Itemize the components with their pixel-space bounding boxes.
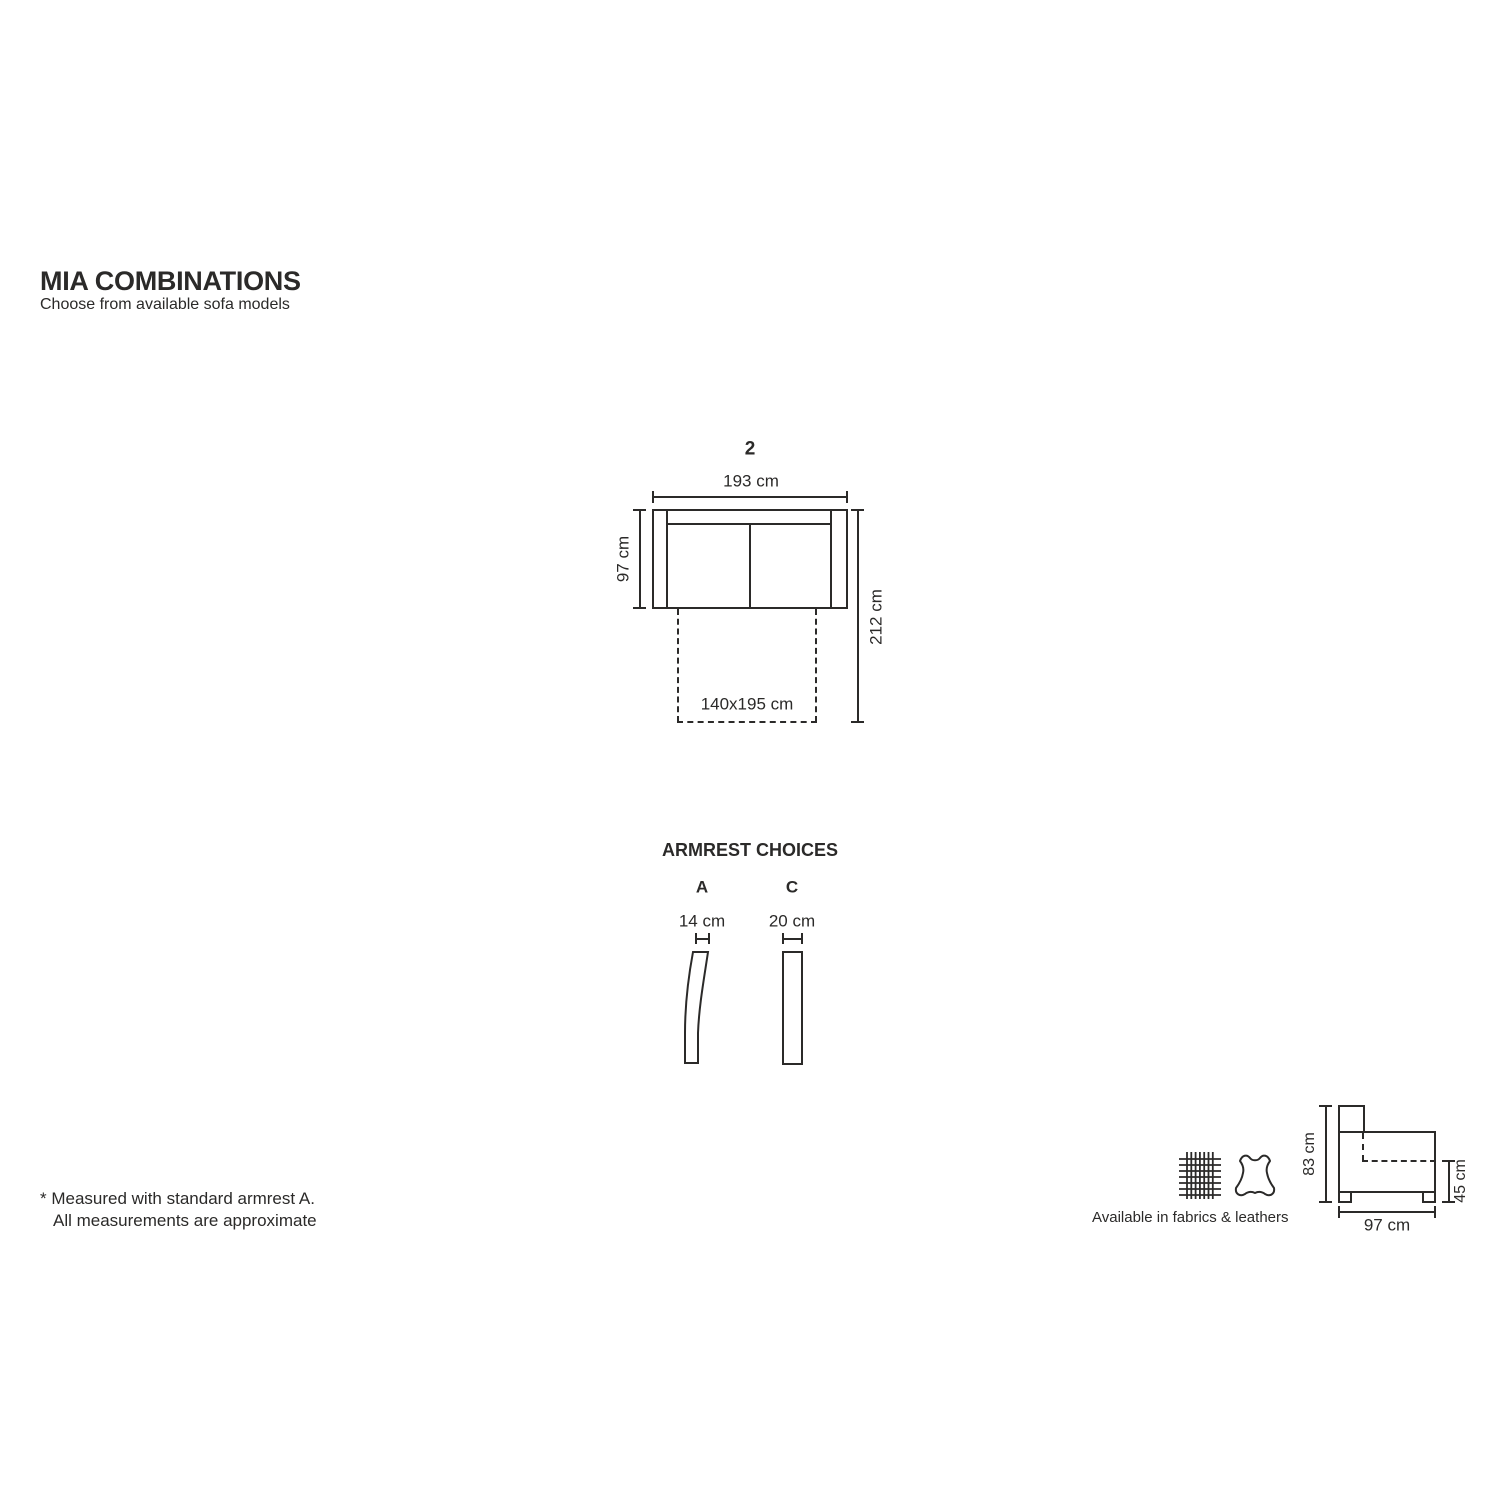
armrest-c-width-label: 20 cm	[769, 913, 815, 930]
armrest-a-profile-icon	[684, 951, 710, 1065]
page-title: MIA COMBINATIONS	[40, 266, 301, 297]
depth-dimension-line	[639, 509, 641, 609]
height-dimension-line	[1325, 1105, 1327, 1203]
extended-depth-dimension-label: 212 cm	[868, 589, 885, 645]
height-dimension-tick-bottom	[1319, 1201, 1332, 1203]
side-depth-dimension-line	[1338, 1211, 1436, 1213]
side-view-seat-dash-vertical	[1362, 1133, 1364, 1161]
footnote-line-2: All measurements are approximate	[53, 1211, 317, 1231]
side-view-back-leg	[1422, 1191, 1436, 1203]
sofa-right-armrest-line	[830, 511, 832, 607]
armrest-a-width-label: 14 cm	[679, 913, 725, 930]
bed-size-label: 140x195 cm	[701, 696, 794, 713]
seat-height-dimension-line	[1448, 1160, 1450, 1203]
armrest-c-dimension-line	[782, 938, 803, 940]
height-dimension-label: 83 cm	[1302, 1132, 1318, 1176]
width-dimension-tick-left	[652, 491, 654, 503]
seat-height-dimension-label: 45 cm	[1453, 1159, 1469, 1203]
sofa-cushion-divider-line	[749, 525, 751, 608]
armrest-a-label: A	[696, 879, 708, 896]
sofa-left-armrest-line	[666, 511, 668, 607]
materials-caption: Available in fabrics & leathers	[1092, 1209, 1289, 1226]
armrest-choices-heading: ARMREST CHOICES	[662, 841, 838, 859]
depth-dimension-label: 97 cm	[615, 536, 632, 582]
footnote-line-1: * Measured with standard armrest A.	[40, 1189, 315, 1209]
armrest-a-tick-left	[695, 933, 697, 944]
spec-sheet-page: MIA COMBINATIONS Choose from available s…	[0, 0, 1501, 1501]
extended-depth-dimension-line	[857, 509, 859, 723]
side-view-front-leg	[1338, 1191, 1352, 1203]
armrest-c-tick-right	[801, 933, 803, 944]
extended-depth-tick-top	[851, 509, 864, 511]
depth-dimension-tick-bottom	[633, 607, 646, 609]
width-dimension-label: 193 cm	[723, 473, 779, 490]
armrest-c-label: C	[786, 879, 798, 896]
extended-depth-tick-bottom	[851, 721, 864, 723]
fabric-swatch-icon	[1179, 1151, 1221, 1200]
page-subtitle: Choose from available sofa models	[40, 296, 290, 314]
armrest-a-tick-right	[708, 933, 710, 944]
side-view-body	[1338, 1131, 1436, 1193]
side-view-backrest	[1338, 1105, 1365, 1133]
side-depth-tick-left	[1338, 1206, 1340, 1218]
armrest-c-profile-icon	[782, 951, 803, 1065]
model-number-label: 2	[745, 440, 756, 459]
armrest-c-tick-left	[782, 933, 784, 944]
side-view-seat-dash-horizontal	[1362, 1160, 1436, 1162]
width-dimension-line	[652, 496, 848, 498]
leather-hide-icon	[1233, 1152, 1277, 1200]
side-depth-dimension-label: 97 cm	[1364, 1217, 1410, 1234]
height-dimension-tick-top	[1319, 1105, 1332, 1107]
side-depth-tick-right	[1434, 1206, 1436, 1218]
depth-dimension-tick-top	[633, 509, 646, 511]
bed-outline-left	[677, 609, 679, 722]
bed-outline-right	[815, 609, 817, 722]
bed-outline-bottom	[677, 721, 817, 723]
width-dimension-tick-right	[846, 491, 848, 503]
